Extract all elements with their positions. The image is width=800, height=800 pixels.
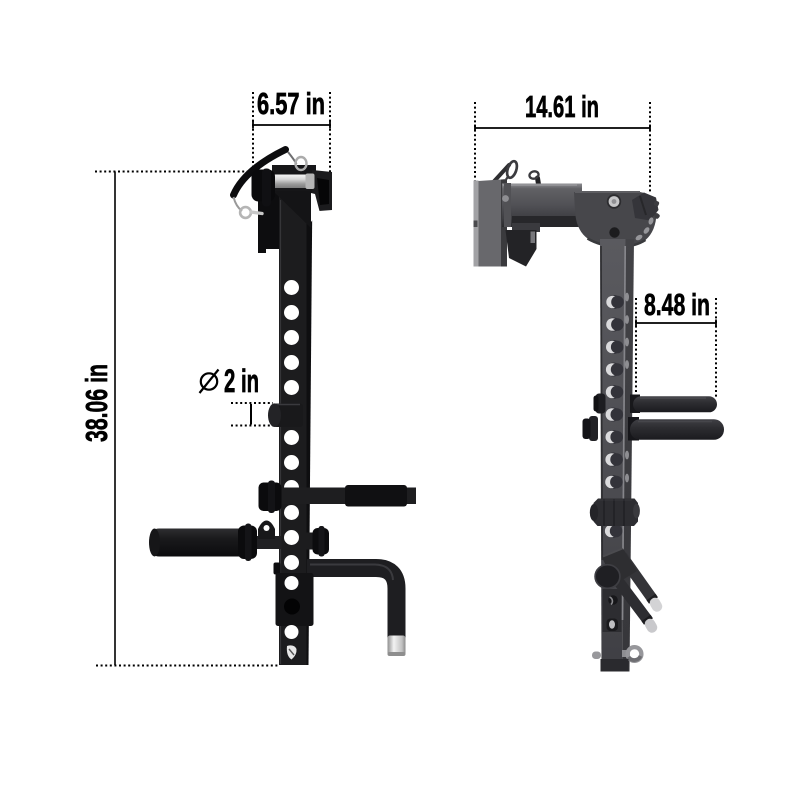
svg-text:8.48 in: 8.48 in <box>644 287 710 322</box>
svg-text:2 in: 2 in <box>224 363 259 399</box>
svg-text:6.57 in: 6.57 in <box>257 86 325 121</box>
svg-text:14.61 in: 14.61 in <box>525 89 599 124</box>
svg-text:38.06 in: 38.06 in <box>79 364 114 442</box>
